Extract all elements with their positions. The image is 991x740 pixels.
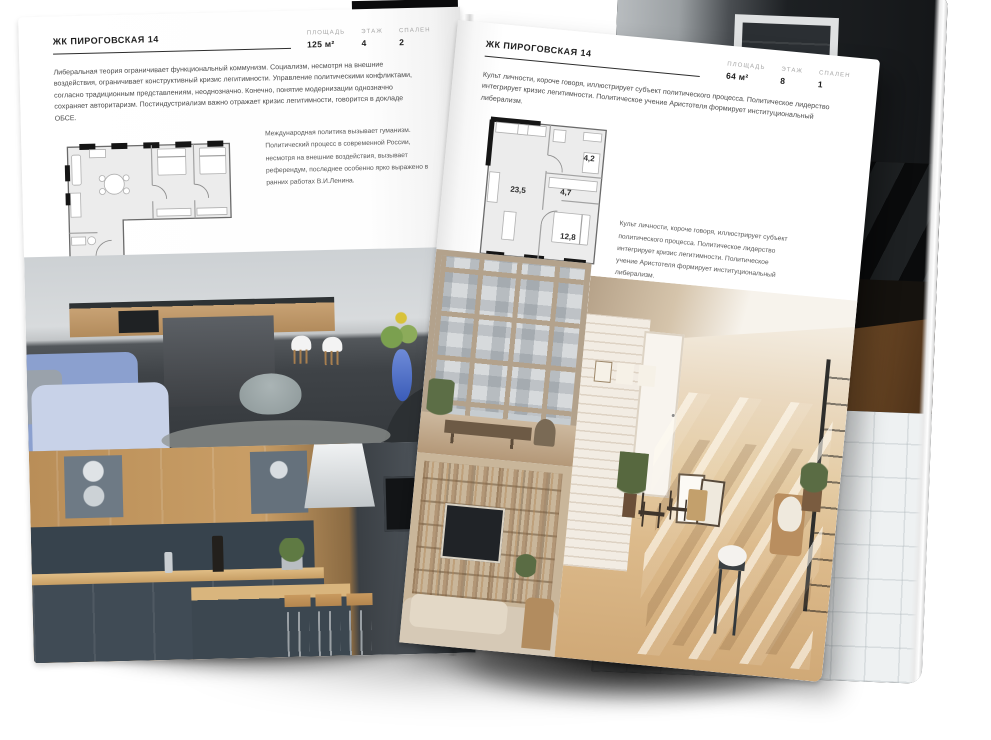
faucet (164, 552, 173, 573)
plant (514, 552, 537, 586)
photo-loft-window (417, 249, 592, 467)
header-rule (53, 48, 291, 55)
stat-value: 8 (780, 76, 803, 88)
left-page-content: ЖК ПИРОГОВСКАЯ 14 ПЛОЩАДЬ 125 м² ЭТАЖ 4 … (53, 27, 437, 270)
bar-stool (316, 594, 344, 657)
wall-frames (594, 361, 613, 384)
stat-label: ПЛОЩАДЬ (307, 30, 346, 37)
room-area-label: 12,8 (560, 232, 577, 242)
herb-pot (274, 538, 310, 571)
stat-area: ПЛОЩАДЬ 64 м² (726, 62, 766, 85)
magazine-spread-mockup: ЖК ПИРОГОВСКАЯ 14 ПЛОЩАДЬ 125 м² ЭТАЖ 4 … (0, 0, 991, 740)
floor-plan-left (55, 126, 244, 271)
left-stats: ПЛОЩАДЬ 125 м² ЭТАЖ 4 СПАЛЕН 2 (307, 27, 431, 49)
room-area-label: 23,5 (510, 185, 527, 195)
stat-label: СПАЛЕН (819, 70, 851, 79)
tv-screen (440, 503, 505, 564)
left-note-paragraph: Международная политика вызывает гуманизм… (265, 125, 436, 265)
oven (118, 310, 158, 332)
stat-value: 125 м² (307, 39, 346, 50)
potted-plant (614, 451, 649, 519)
right-page: ЖК ПИРОГОВСКАЯ 14 ПЛОЩАДЬ 64 м² ЭТАЖ 8 С… (399, 20, 880, 682)
bottle (212, 536, 224, 572)
stat-area: ПЛОЩАДЬ 125 м² (307, 30, 346, 50)
stat-floor: ЭТАЖ 8 (780, 67, 803, 88)
photo-bookshelf-living-room (399, 452, 572, 657)
stat-value: 1 (817, 79, 849, 92)
wood-chair (521, 597, 555, 651)
extractor-hood (303, 443, 375, 508)
stat-value: 64 м² (726, 71, 765, 85)
basket (686, 489, 708, 521)
stat-value: 2 (399, 36, 431, 47)
photo-kitchen-island-living (24, 247, 471, 452)
stat-label: ЭТАЖ (781, 67, 803, 75)
page-title: ЖК ПИРОГОВСКАЯ 14 (53, 31, 291, 47)
page-title: ЖК ПИРОГОВСКАЯ 14 (485, 39, 701, 69)
left-plan-row: Международная политика вызывает гуманизм… (55, 121, 436, 270)
bar-stool (347, 593, 375, 656)
photo-sunlit-room (554, 276, 857, 683)
plant-stand (797, 461, 828, 513)
plant (424, 377, 455, 428)
blue-vase (391, 349, 412, 402)
right-stats: ПЛОЩАДЬ 64 м² ЭТАЖ 8 СПАЛЕН 1 (726, 62, 851, 93)
floor-plan-left-svg (55, 126, 244, 271)
left-header: ЖК ПИРОГОВСКАЯ 14 ПЛОЩАДЬ 125 м² ЭТАЖ 4 … (53, 27, 431, 54)
white-chair (322, 337, 342, 352)
light-cushion (32, 382, 171, 451)
stat-label: ПЛОЩАДЬ (727, 62, 766, 72)
white-chair (291, 336, 311, 351)
glass-cabinet (250, 451, 309, 514)
stat-floor: ЭТАЖ 4 (361, 29, 383, 49)
bar-stool (285, 595, 313, 658)
left-intro-paragraph: Либеральная теория ограничивает функцион… (53, 59, 421, 125)
floor-plan-right-svg: 23,5 4,7 4,2 12,8 (466, 109, 619, 272)
room-area-label: 4,2 (583, 154, 595, 164)
stat-bedrooms: СПАЛЕН 1 (817, 70, 850, 92)
room-area-label: 4,7 (560, 188, 572, 198)
floor-plan-right: 23,5 4,7 4,2 12,8 (465, 109, 619, 278)
stat-label: ЭТАЖ (361, 29, 383, 36)
flower (379, 310, 420, 354)
stat-label: СПАЛЕН (399, 27, 431, 34)
stool (534, 418, 557, 446)
pouf (239, 373, 302, 415)
stat-value: 4 (361, 38, 383, 49)
stat-bedrooms: СПАЛЕН 2 (399, 27, 431, 47)
glass-cabinet (64, 455, 123, 518)
